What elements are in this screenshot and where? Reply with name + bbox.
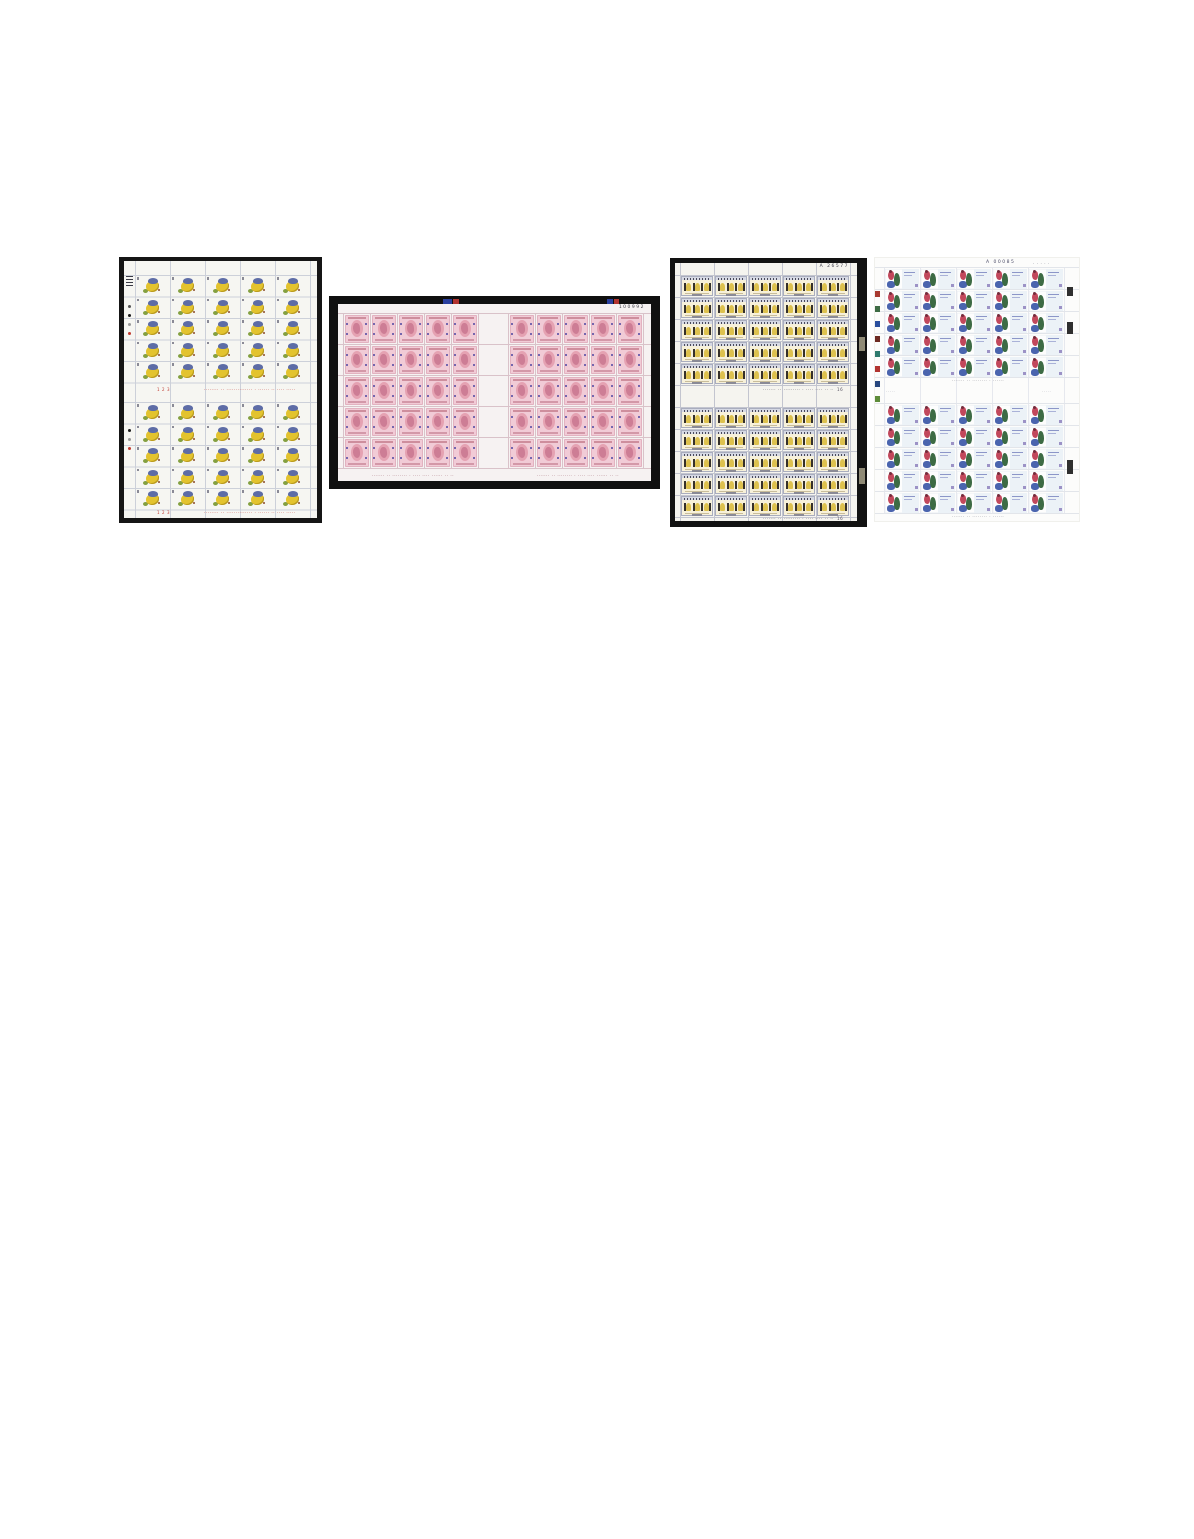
printer-imprint-above-gutter: ······· ·· ········ · ······ xyxy=(938,378,1018,383)
figure-motif xyxy=(777,459,779,467)
ornament xyxy=(392,364,394,366)
stamp-art xyxy=(406,353,414,365)
stamp-art xyxy=(828,338,838,340)
arch-motif xyxy=(754,503,759,511)
stamp-art xyxy=(456,463,474,465)
arch-motif xyxy=(729,349,734,357)
stamp-art xyxy=(544,415,552,427)
stamp xyxy=(921,471,955,491)
stamp-art xyxy=(1048,411,1056,412)
stamp-art xyxy=(760,492,770,494)
stamp-art xyxy=(915,350,918,353)
stamp-art xyxy=(193,416,195,418)
figure-motif xyxy=(718,327,720,335)
arch-motif xyxy=(822,415,827,423)
stamp-art xyxy=(997,494,1000,497)
figure-motif xyxy=(829,437,831,445)
stamp-art xyxy=(598,353,606,365)
stamp-art xyxy=(904,360,915,362)
stamp xyxy=(885,313,919,333)
figure-motif xyxy=(727,481,729,489)
figure-motif xyxy=(786,305,788,313)
stamp-art xyxy=(571,415,579,427)
gutter-printer-imprint: ········ ·· ·············· · ······ ·· ·… xyxy=(204,387,304,392)
figure-motif xyxy=(684,481,686,489)
arch-motif xyxy=(720,437,725,445)
stamp xyxy=(510,439,534,467)
stamp-art xyxy=(894,339,900,352)
stamp xyxy=(372,315,396,343)
stamp-art xyxy=(288,491,298,497)
ornament xyxy=(584,364,586,366)
stamp-art xyxy=(987,442,990,445)
figure-motif xyxy=(795,459,797,467)
ornament xyxy=(592,385,594,387)
stamp-art xyxy=(1038,497,1044,510)
stamp-art xyxy=(277,363,279,366)
stamp xyxy=(993,291,1027,311)
ornament xyxy=(611,364,613,366)
stamp-art xyxy=(1048,430,1059,432)
stamp-art xyxy=(172,320,174,323)
stamp xyxy=(372,377,396,405)
stamp xyxy=(921,493,955,513)
arch-motif xyxy=(822,371,827,379)
stamp-art xyxy=(1002,317,1008,330)
arch-motif xyxy=(763,371,768,379)
ornament xyxy=(565,323,567,325)
stamp xyxy=(681,496,713,516)
ornament xyxy=(611,323,613,325)
arch-motif xyxy=(729,283,734,291)
stamp-art xyxy=(207,342,209,345)
stamp-art xyxy=(429,348,447,350)
ornament xyxy=(365,395,367,397)
stamp-sheet-photo-4: A 00085 · · · · · ······· ·· ········ · … xyxy=(874,257,1080,522)
figure-motif xyxy=(795,371,797,379)
stamp-art xyxy=(288,405,298,411)
ornament xyxy=(400,457,402,459)
stamp-art xyxy=(137,342,139,345)
arch-motif xyxy=(695,437,700,445)
ornament xyxy=(454,354,456,356)
figure-motif xyxy=(684,437,686,445)
stamp xyxy=(240,488,275,510)
stamp-art xyxy=(794,448,804,450)
stamp xyxy=(345,408,369,436)
ornament xyxy=(373,385,375,387)
stamp-art xyxy=(253,321,263,327)
stamp-art xyxy=(594,441,612,443)
arch-motif xyxy=(754,327,759,335)
stamp-art xyxy=(894,295,900,308)
stamp-art xyxy=(148,427,158,433)
stamp-art xyxy=(228,375,230,377)
ornament xyxy=(346,333,348,335)
figure-motif xyxy=(820,371,822,379)
stamp-art xyxy=(987,284,990,287)
stamp xyxy=(817,430,849,450)
stamp xyxy=(993,493,1027,513)
stamp xyxy=(885,471,919,491)
stamp-art xyxy=(889,270,892,273)
stamp-art xyxy=(1038,339,1044,352)
stamp-art xyxy=(621,379,639,381)
ornament xyxy=(530,323,532,325)
ornament xyxy=(638,457,640,459)
stamp-art xyxy=(375,317,393,319)
figure-motif xyxy=(752,437,754,445)
stamp-art xyxy=(193,289,195,291)
ornament xyxy=(400,416,402,418)
stamp xyxy=(453,315,477,343)
stamp-art xyxy=(828,470,838,472)
ornament xyxy=(638,333,640,335)
stamp-art xyxy=(433,353,441,365)
figure-motif xyxy=(837,415,839,423)
arch-motif xyxy=(695,481,700,489)
figure-motif xyxy=(837,503,839,511)
figure-motif xyxy=(845,305,847,313)
figure-motif xyxy=(803,283,805,291)
arch-motif xyxy=(686,349,691,357)
stamp-art xyxy=(940,474,951,476)
stamp-art xyxy=(966,361,972,374)
gutter-mark-left: ····· xyxy=(886,389,895,394)
stamp-art xyxy=(940,496,951,498)
stamp-art xyxy=(904,275,912,276)
ornament xyxy=(584,457,586,459)
stamp xyxy=(817,408,849,428)
stamp-art xyxy=(207,277,209,280)
figure-motif xyxy=(811,415,813,423)
stamp-art xyxy=(692,448,702,450)
stamp xyxy=(957,427,991,447)
stamp xyxy=(275,445,310,467)
arch-motif xyxy=(720,371,725,379)
ornament xyxy=(530,333,532,335)
stamp-art xyxy=(1023,464,1026,467)
stamp xyxy=(715,364,747,384)
stamp-art xyxy=(828,294,838,296)
arch-motif xyxy=(695,327,700,335)
stamp-art xyxy=(193,459,195,461)
sheet-paper: 100992 ······· ·· ········ · ···· ···· ·… xyxy=(338,304,651,481)
ornament xyxy=(511,416,513,418)
stamp-art xyxy=(1059,284,1062,287)
stamp xyxy=(885,335,919,355)
stamp xyxy=(537,346,561,374)
stamp-art xyxy=(406,415,414,427)
figure-motif xyxy=(693,305,695,313)
figure-motif xyxy=(769,459,771,467)
stamp xyxy=(1029,471,1063,491)
arch-motif xyxy=(831,437,836,445)
stamp-art xyxy=(460,384,468,396)
stamp-art xyxy=(571,322,579,334)
arch-motif xyxy=(729,459,734,467)
arch-motif xyxy=(831,305,836,313)
stamp-art xyxy=(997,336,1000,339)
figure-motif xyxy=(845,371,847,379)
ornament xyxy=(473,385,475,387)
stamp-art xyxy=(925,292,928,295)
stamp-art xyxy=(456,379,474,381)
figure-motif xyxy=(727,305,729,313)
ornament xyxy=(446,457,448,459)
figure-motif xyxy=(761,503,763,511)
stamp-art xyxy=(930,431,936,444)
stamp-art xyxy=(288,364,298,370)
stamp-art xyxy=(976,496,987,498)
stamp-art xyxy=(794,426,804,428)
figure-motif xyxy=(693,371,695,379)
arch-motif xyxy=(720,459,725,467)
stamp-art xyxy=(794,470,804,472)
ornament xyxy=(538,426,540,428)
stamp-art xyxy=(517,353,525,365)
figure-motif xyxy=(769,327,771,335)
stamp xyxy=(817,474,849,494)
stamp-art xyxy=(625,322,633,334)
ornament xyxy=(557,354,559,356)
figure-motif xyxy=(769,437,771,445)
stamp-art xyxy=(253,405,263,411)
ornament xyxy=(511,426,513,428)
stamp-art xyxy=(193,354,195,356)
ornament xyxy=(365,323,367,325)
ornament xyxy=(446,447,448,449)
stamp-art xyxy=(228,354,230,356)
ornament xyxy=(473,364,475,366)
arch-motif xyxy=(763,437,768,445)
bottom-printer-imprint: ········ ·· ·············· · ······ ·· ·… xyxy=(204,510,304,515)
arch-motif xyxy=(788,481,793,489)
stamp-art xyxy=(961,336,964,339)
backdrop-notch xyxy=(859,337,865,351)
arch-motif xyxy=(686,481,691,489)
ornament xyxy=(511,447,513,449)
stamp-art xyxy=(915,508,918,511)
stamp-art xyxy=(925,428,928,431)
stamp-art xyxy=(228,438,230,440)
figure-motif xyxy=(718,349,720,357)
figure-motif xyxy=(718,459,720,467)
stamp-art xyxy=(1012,294,1023,296)
stamp-art xyxy=(784,453,814,456)
stamp xyxy=(957,291,991,311)
ornament xyxy=(530,426,532,428)
stamp xyxy=(681,320,713,340)
stamp-art xyxy=(594,432,612,434)
stamp-art xyxy=(242,320,244,323)
arch-motif xyxy=(797,415,802,423)
ornament xyxy=(538,354,540,356)
stamp-art xyxy=(540,348,558,350)
stamp-art xyxy=(1002,295,1008,308)
ornament xyxy=(584,447,586,449)
stamp-art xyxy=(976,363,984,364)
stamp-art xyxy=(1059,442,1062,445)
arch-motif xyxy=(754,459,759,467)
figure-motif xyxy=(684,283,686,291)
arch-motif xyxy=(822,437,827,445)
stamp xyxy=(749,496,781,516)
arch-motif xyxy=(831,415,836,423)
stamp-art xyxy=(228,332,230,334)
figure-motif xyxy=(709,349,711,357)
arch-motif xyxy=(695,305,700,313)
stamp-art xyxy=(1023,350,1026,353)
arch-motif xyxy=(729,305,734,313)
figure-motif xyxy=(752,481,754,489)
arch-motif xyxy=(831,371,836,379)
ornament xyxy=(592,416,594,418)
stamp-art xyxy=(207,447,209,450)
stamp-art xyxy=(567,348,585,350)
stamp-art xyxy=(172,426,174,429)
figure-motif xyxy=(709,459,711,467)
stamp xyxy=(783,276,815,296)
figure-motif xyxy=(693,503,695,511)
ornament xyxy=(592,457,594,459)
figure-motif xyxy=(761,327,763,335)
stamp-art xyxy=(997,358,1000,361)
ornament xyxy=(365,333,367,335)
ornament xyxy=(584,395,586,397)
ornament xyxy=(373,416,375,418)
stamp-art xyxy=(1012,272,1023,274)
stamp xyxy=(205,318,240,340)
stamp-art xyxy=(352,384,360,396)
stamp-art xyxy=(784,497,814,500)
ornament xyxy=(473,354,475,356)
stamp-art xyxy=(904,452,915,454)
stamp-art xyxy=(682,497,712,500)
stamp-art xyxy=(460,415,468,427)
figure-motif xyxy=(718,305,720,313)
stamp xyxy=(537,408,561,436)
stamp-art xyxy=(513,432,531,434)
stamp-art xyxy=(1048,408,1059,410)
stamp xyxy=(135,361,170,383)
stamp-art xyxy=(540,317,558,319)
stamp-art xyxy=(183,491,193,497)
stamp-art xyxy=(930,317,936,330)
sheet-paper: 1 2 3 ········ ·· ·············· · ·····… xyxy=(124,261,317,518)
stamp-art xyxy=(621,441,639,443)
stamp xyxy=(240,467,275,489)
ornament xyxy=(454,323,456,325)
stamp-art xyxy=(277,469,279,472)
figure-motif xyxy=(829,503,831,511)
arch-motif xyxy=(695,283,700,291)
stamp-art xyxy=(904,477,912,478)
arch-motif xyxy=(686,283,691,291)
ornament xyxy=(565,385,567,387)
stamp-art xyxy=(894,475,900,488)
stamp-art xyxy=(263,416,265,418)
ornament xyxy=(346,354,348,356)
stamp-art xyxy=(940,341,948,342)
sheet-serial-number: 100992 xyxy=(619,305,645,310)
stamp-art xyxy=(513,410,531,412)
stamp-art xyxy=(1059,464,1062,467)
stamp-art xyxy=(277,404,279,407)
stamp-art xyxy=(930,361,936,374)
ornament xyxy=(638,323,640,325)
arch-motif xyxy=(729,371,734,379)
figure-motif xyxy=(701,437,703,445)
stamp xyxy=(749,474,781,494)
stamp xyxy=(453,346,477,374)
figure-motif xyxy=(743,371,745,379)
stamp-art xyxy=(137,277,139,280)
stamp xyxy=(240,445,275,467)
figure-motif xyxy=(761,415,763,423)
ornament xyxy=(454,333,456,335)
stamp xyxy=(345,377,369,405)
figure-motif xyxy=(709,371,711,379)
stamp-sheet-photo-2: 100992 ······· ·· ········ · ···· ···· ·… xyxy=(329,296,660,489)
ornament xyxy=(592,426,594,428)
arch-motif xyxy=(831,283,836,291)
ornament xyxy=(530,457,532,459)
stamp-art xyxy=(375,410,393,412)
figure-motif xyxy=(820,327,822,335)
stamp-art xyxy=(925,336,928,339)
stamp-art xyxy=(1012,363,1020,364)
figure-motif xyxy=(718,371,720,379)
stamp xyxy=(170,488,205,510)
stamp-art xyxy=(750,431,780,434)
stamp xyxy=(510,377,534,405)
figure-motif xyxy=(752,371,754,379)
figure-motif xyxy=(769,415,771,423)
arch-motif xyxy=(822,481,827,489)
arch-motif xyxy=(797,481,802,489)
stamp-art xyxy=(1023,306,1026,309)
figure-motif xyxy=(845,503,847,511)
stamp-art xyxy=(625,446,633,458)
figure-motif xyxy=(761,349,763,357)
arch-motif xyxy=(729,327,734,335)
arch-motif xyxy=(754,283,759,291)
figure-motif xyxy=(735,327,737,335)
stamp-art xyxy=(818,277,848,280)
stamp xyxy=(399,377,423,405)
stamp-art xyxy=(183,300,193,306)
figure-motif xyxy=(769,503,771,511)
stamp-art xyxy=(997,450,1000,453)
stamp-art xyxy=(692,470,702,472)
stamp-art xyxy=(429,441,447,443)
figure-motif xyxy=(786,437,788,445)
stamp-art xyxy=(1023,442,1026,445)
stamp xyxy=(135,318,170,340)
stamp-art xyxy=(402,317,420,319)
stamp-art xyxy=(951,350,954,353)
stamp-art xyxy=(172,490,174,493)
stamp-art xyxy=(513,441,531,443)
ornament xyxy=(446,323,448,325)
stamp xyxy=(510,346,534,374)
stamp-art xyxy=(904,496,915,498)
figure-motif xyxy=(837,327,839,335)
stamp-art xyxy=(263,289,265,291)
ornament xyxy=(392,354,394,356)
stamp-art xyxy=(1012,496,1023,498)
